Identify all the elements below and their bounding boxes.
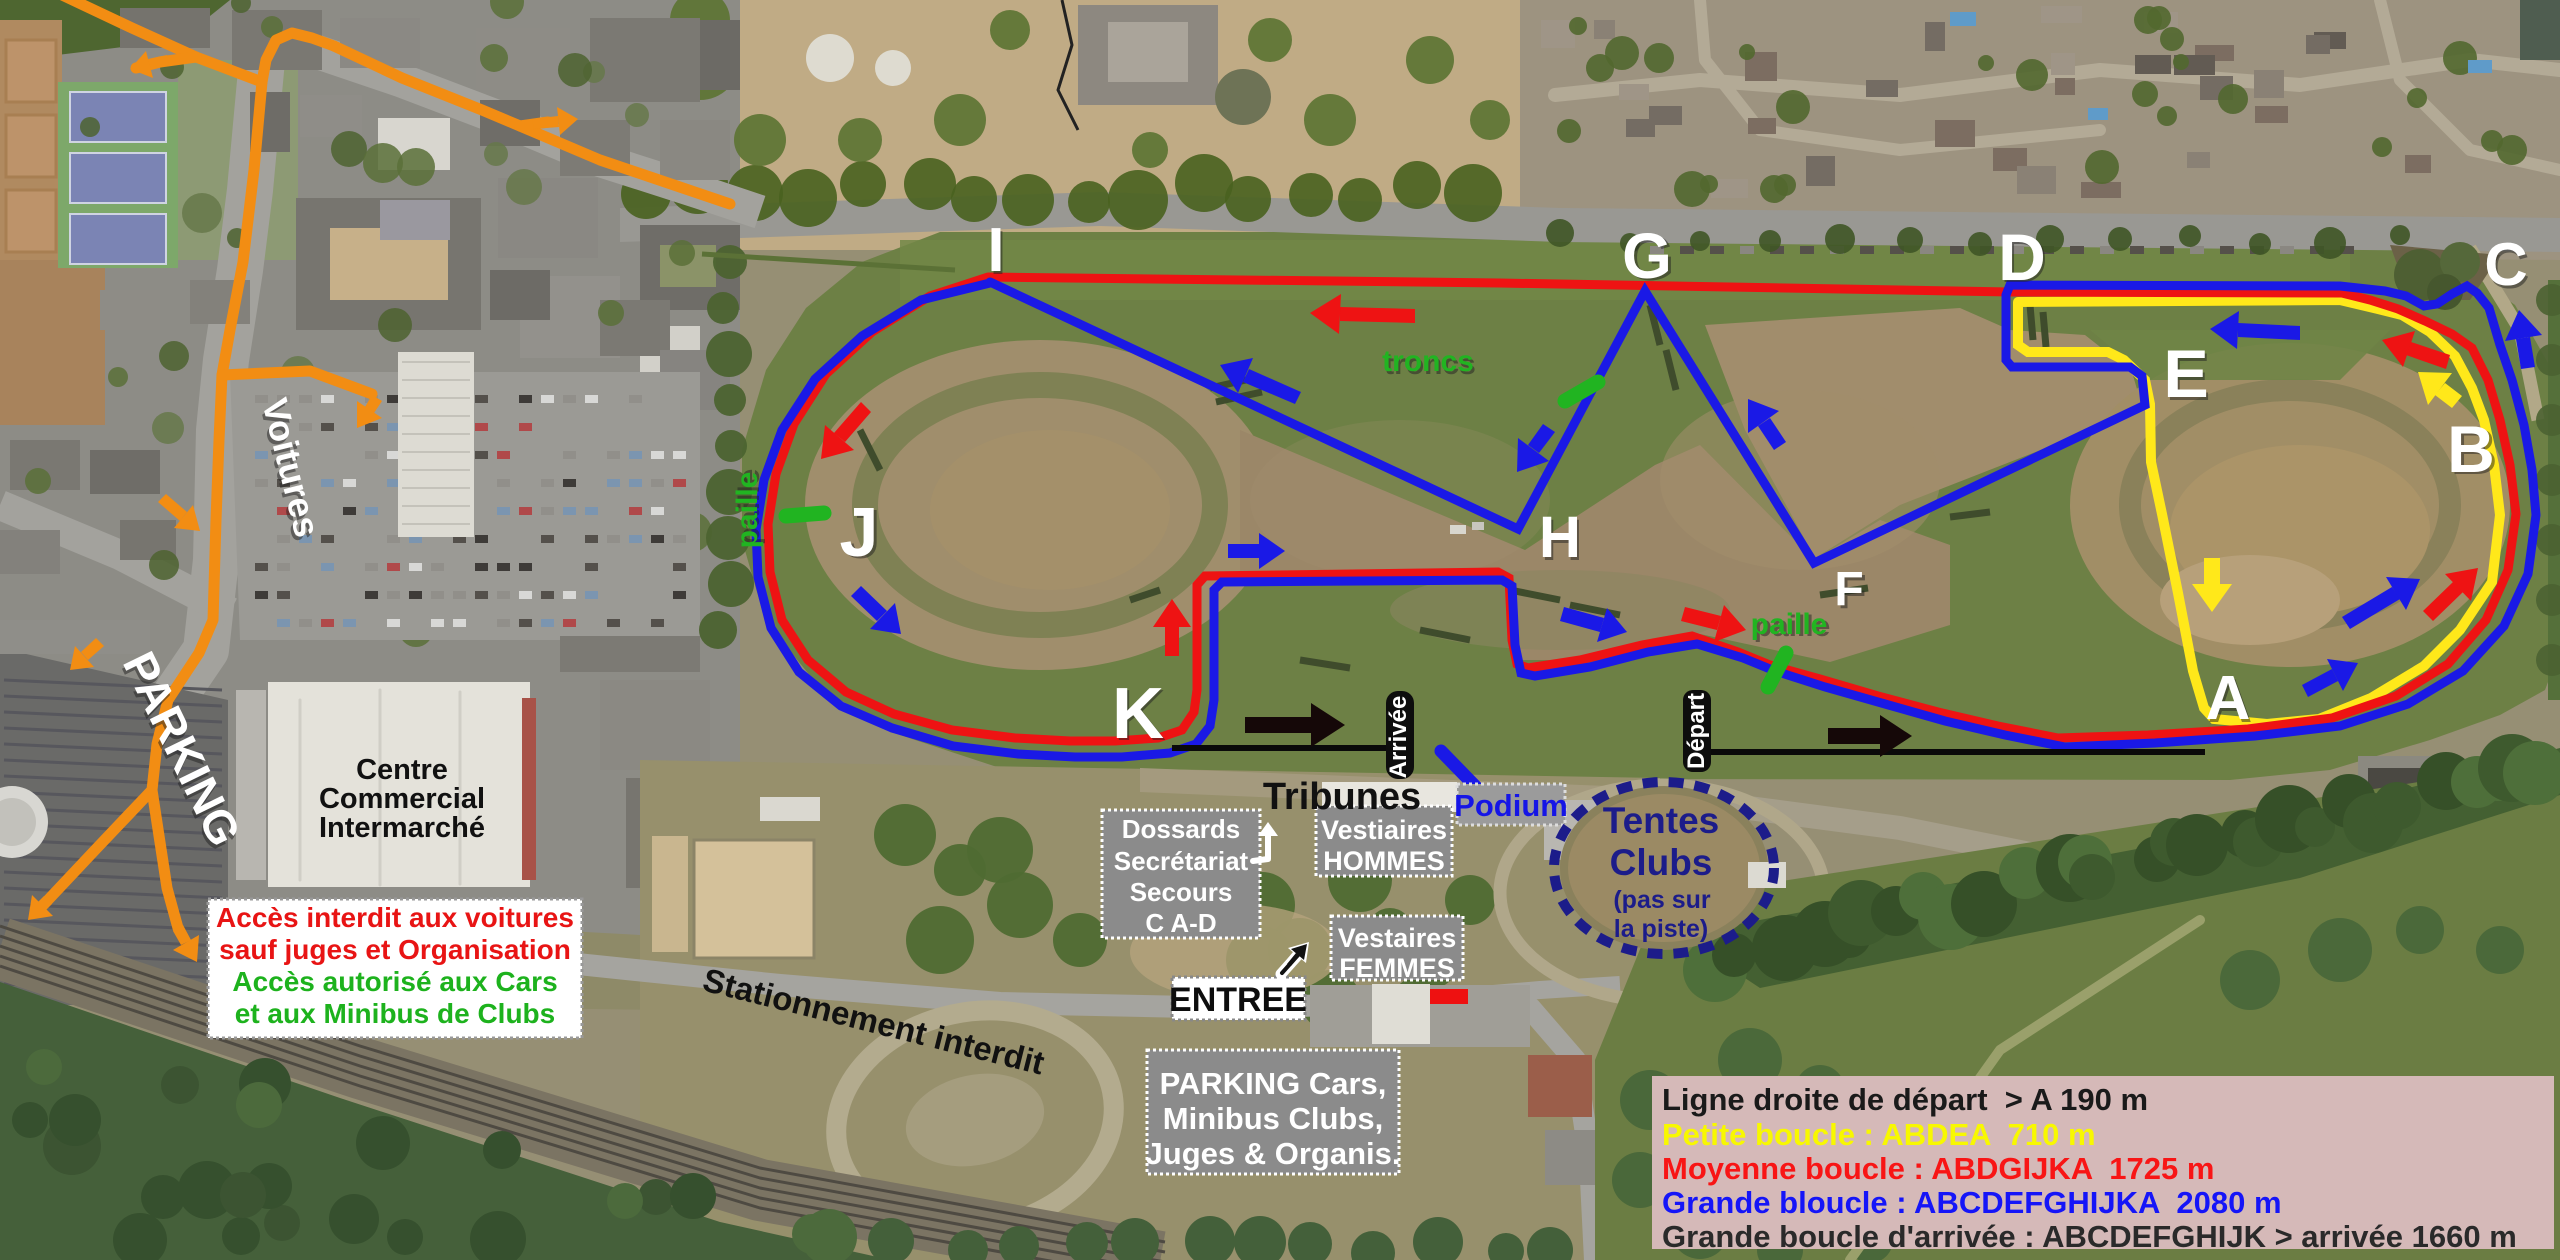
svg-text:paille: paille bbox=[1751, 608, 1828, 641]
svg-text:Secours: Secours bbox=[1130, 877, 1233, 907]
svg-text:Juges & Organis.: Juges & Organis. bbox=[1146, 1136, 1401, 1171]
svg-text:J: J bbox=[840, 493, 879, 571]
svg-text:ENTREE: ENTREE bbox=[1169, 981, 1307, 1019]
svg-text:Podium: Podium bbox=[1454, 788, 1568, 823]
svg-text:H: H bbox=[1539, 505, 1581, 570]
svg-text:Secrétariat: Secrétariat bbox=[1114, 846, 1249, 876]
svg-text:Grande boucle d'arrivée : ABCD: Grande boucle d'arrivée : ABCDEFGHIJK > … bbox=[1662, 1219, 2517, 1254]
svg-text:Dossards: Dossards bbox=[1122, 814, 1241, 844]
svg-text:Minibus Clubs,: Minibus Clubs, bbox=[1163, 1101, 1383, 1136]
svg-text:paille: paille bbox=[731, 472, 764, 549]
svg-text:PARKING Cars,: PARKING Cars, bbox=[1160, 1066, 1387, 1101]
svg-text:Tribunes: Tribunes bbox=[1263, 776, 1421, 818]
svg-text:Accès autorisé aux Cars: Accès autorisé aux Cars bbox=[232, 966, 557, 997]
svg-text:Petite boucle : ABDEA 710 m: Petite boucle : ABDEA 710 m bbox=[1662, 1117, 2096, 1152]
svg-text:D: D bbox=[1998, 220, 2046, 294]
svg-text:Arrivée: Arrivée bbox=[1385, 696, 1412, 779]
svg-text:Clubs: Clubs bbox=[1610, 842, 1713, 883]
svg-text:HOMMES: HOMMES bbox=[1323, 846, 1445, 876]
svg-text:sauf juges et Organisation: sauf juges et Organisation bbox=[219, 934, 571, 965]
svg-text:B: B bbox=[2447, 412, 2495, 486]
svg-text:I: I bbox=[987, 216, 1004, 285]
svg-text:Commercial: Commercial bbox=[319, 783, 485, 815]
svg-text:C: C bbox=[2484, 231, 2527, 298]
svg-text:A: A bbox=[2206, 664, 2251, 733]
svg-text:troncs: troncs bbox=[1382, 345, 1474, 378]
svg-text:(pas sur: (pas sur bbox=[1613, 886, 1711, 914]
svg-text:K: K bbox=[1112, 674, 1164, 754]
svg-text:la piste): la piste) bbox=[1614, 915, 1708, 943]
svg-text:C A-D: C A-D bbox=[1145, 908, 1216, 938]
svg-text:Moyenne boucle : ABDGIJKA 172: Moyenne boucle : ABDGIJKA 1725 m bbox=[1662, 1151, 2214, 1186]
svg-text:Intermarché: Intermarché bbox=[319, 812, 485, 844]
svg-text:et aux Minibus de Clubs: et aux Minibus de Clubs bbox=[235, 998, 555, 1029]
svg-text:Vestiaires: Vestiaires bbox=[1321, 815, 1447, 845]
svg-text:F: F bbox=[1834, 563, 1863, 616]
svg-text:FEMMES: FEMMES bbox=[1339, 953, 1455, 983]
svg-text:Départ: Départ bbox=[1683, 693, 1710, 769]
svg-text:Centre: Centre bbox=[356, 754, 448, 786]
svg-text:Vestaires: Vestaires bbox=[1338, 923, 1457, 953]
svg-text:Grande bloucle : ABCDEFGHIJKA: Grande bloucle : ABCDEFGHIJKA 2080 m bbox=[1662, 1185, 2282, 1220]
svg-text:Accès interdit aux voitures: Accès interdit aux voitures bbox=[216, 902, 574, 933]
svg-text:G: G bbox=[1622, 220, 1672, 292]
svg-text:E: E bbox=[2163, 336, 2208, 412]
svg-text:Ligne droite de départ > A 19: Ligne droite de départ > A 190 m bbox=[1662, 1082, 2148, 1117]
svg-text:Tentes: Tentes bbox=[1603, 800, 1720, 841]
